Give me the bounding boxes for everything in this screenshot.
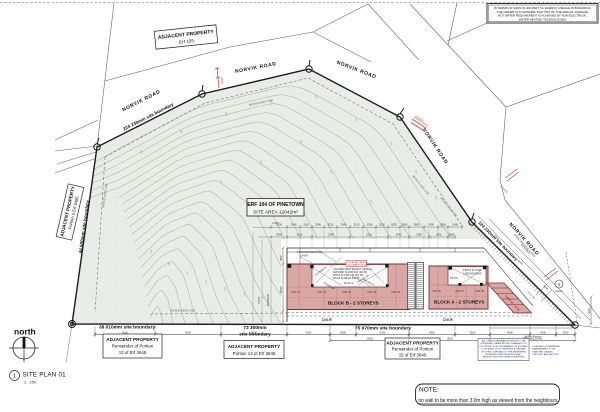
svg-text:site boundary: site boundary [239,332,271,338]
svg-text:2340: 2340 [367,223,373,227]
svg-text:3500: 3500 [470,330,476,334]
svg-text:diffused filtration: diffused filtration [524,336,542,339]
svg-text:Remainder of Portion: Remainder of Portion [112,344,154,349]
svg-text:2600: 2600 [340,330,346,334]
svg-text:6600: 6600 [185,330,191,334]
svg-text:UNIT 01: UNIT 01 [291,291,301,294]
svg-text:2600: 2600 [587,308,591,314]
svg-text:SOAK AGE STORMWATER: SOAK AGE STORMWATER [533,345,561,348]
svg-text:S: S [558,282,561,287]
svg-text:4000: 4000 [507,330,513,334]
svg-text:CH05: CH05 [272,221,279,225]
svg-text:2340: 2340 [315,223,321,227]
svg-text:ADJACENT PROPERTY: ADJACENT PROPERTY [228,344,281,349]
svg-text:1400: 1400 [452,223,458,227]
svg-text:3130: 3130 [416,233,422,237]
svg-text:3130: 3130 [297,233,303,237]
svg-text:14000: 14000 [279,286,283,294]
svg-text:3000: 3000 [402,223,408,227]
svg-text:VOLUME: VOLUME [347,265,357,267]
svg-text:Portion 14 of Erf 3645: Portion 14 of Erf 3645 [233,351,276,356]
svg-text:north: north [14,327,36,337]
svg-text:RESPECTS AT THE OWNERS EXPENSE: RESPECTS AT THE OWNERS EXPENSE [483,356,525,359]
svg-text:3M BUILDING LINE: 3M BUILDING LINE [170,309,195,313]
svg-text:UNIT 07: UNIT 07 [455,290,465,293]
svg-text:2800: 2800 [440,223,446,227]
svg-text:38 010mm site boundary: 38 010mm site boundary [99,325,155,331]
svg-text:1900: 1900 [428,223,434,227]
svg-text:1 : 250: 1 : 250 [24,380,37,385]
svg-text:refuse: refuse [220,77,225,85]
svg-text:3000: 3000 [449,233,455,237]
svg-text:POSITIONS TO BE DETERMINED ON: POSITIONS TO BE DETERMINED ON SITE AND [479,345,528,348]
svg-text:3130: 3130 [328,223,334,227]
svg-text:PLANTED: PLANTED [358,261,369,264]
svg-text:73 300mm: 73 300mm [243,325,266,331]
svg-text:UNIT 02: UNIT 02 [317,291,327,294]
svg-text:3110: 3110 [354,223,360,227]
svg-text:3110: 3110 [303,223,309,227]
svg-text:UNIT 08: UNIT 08 [475,290,485,293]
svg-text:1900: 1900 [563,330,569,334]
svg-text:Remainder of Portion: Remainder of Portion [392,347,434,352]
svg-text:3 BEDROOMS: 3 BEDROOMS [463,272,482,276]
svg-text:POOL: POOL [257,296,261,304]
svg-text:4300: 4300 [306,330,312,334]
svg-text:3110: 3110 [366,233,372,237]
svg-text:UNIT 06: UNIT 06 [432,290,442,293]
svg-text:15 of Erf 3645: 15 of Erf 3645 [399,353,427,358]
svg-text:2800: 2800 [414,223,420,227]
svg-text:PATIO: PATIO [450,276,459,280]
svg-text:DOUBLE: DOUBLE [347,262,357,264]
svg-text:ROOF SLAB RL 410.55: ROOF SLAB RL 410.55 [333,277,360,280]
svg-text:BLOCK A - 2 STOREYS: BLOCK A - 2 STOREYS [434,300,484,305]
svg-text:40.32 m²: 40.32 m² [344,282,354,285]
svg-text:ADJACENT PROPERTY: ADJACENT PROPERTY [386,341,439,346]
svg-text:ROOF 404.8: ROOF 404.8 [358,265,371,267]
svg-text:13 of Erf 3645: 13 of Erf 3645 [119,350,147,355]
svg-text:ALL ON SITE RAINWATER RUNOFF T: ALL ON SITE RAINWATER RUNOFF TO BE [482,340,526,343]
svg-text:1820: 1820 [436,233,442,237]
svg-text:MASONRY GRATED: MASONRY GRATED [533,350,554,353]
svg-text:TO BE A MIN OF 3m FROM ANY BOU: TO BE A MIN OF 3m FROM ANY BOUNDARY [481,348,527,351]
svg-text:TERRACE: TERRACE [266,294,270,307]
svg-text:MANAGEMENT TO BE: MANAGEMENT TO BE [533,348,556,351]
svg-text:NOTE:: NOTE: [419,387,439,394]
svg-text:9000: 9000 [447,336,453,340]
svg-text:LAWN: LAWN [300,254,308,258]
svg-text:4650: 4650 [279,255,283,261]
svg-text:SITE PLAN 01: SITE PLAN 01 [23,372,67,379]
svg-text:BLOCK B - 2 STOREYS: BLOCK B - 2 STOREYS [328,301,379,306]
svg-text:8950: 8950 [367,336,373,340]
svg-text:UNIT 05: UNIT 05 [391,291,401,294]
svg-text:CATCHPIT AND RECORD: CATCHPIT AND RECORD [533,353,559,356]
svg-text:WATER HEATING TECHNOLOGIES: WATER HEATING TECHNOLOGIES [519,17,566,21]
svg-text:ADJACENT PROPERTY: ADJACENT PROPERTY [106,337,159,342]
svg-text:SITE AREA 12042m²: SITE AREA 12042m² [253,210,298,216]
svg-text:2340: 2340 [341,223,347,227]
svg-text:75 970mm site boundary: 75 970mm site boundary [355,326,411,332]
svg-text:DETAIL AND SPECIFICATION IN AL: DETAIL AND SPECIFICATION IN ALL [485,353,523,356]
svg-text:2340: 2340 [291,223,297,227]
svg-text:4600: 4600 [429,330,435,334]
svg-text:ERF 104 OF PINETOWN: ERF 104 OF PINETOWN [247,202,304,208]
svg-text:UNIT 04: UNIT 04 [367,291,377,294]
svg-text:2340: 2340 [276,233,282,237]
svg-text:1: 1 [13,374,16,380]
svg-text:OR STRUCTURE AND TO THE ENGINE: OR STRUCTURE AND TO THE ENGINEERS [481,350,526,353]
svg-text:3130: 3130 [379,223,385,227]
svg-text:bank: bank [322,317,333,322]
svg-text:UNIT 03: UNIT 03 [342,291,352,294]
svg-text:DISPERSED VIA APPROVED SOAKAGE: DISPERSED VIA APPROVED SOAKAGE PITS [480,342,527,345]
svg-text:1820: 1820 [391,223,397,227]
svg-text:bank: bank [443,317,454,322]
svg-text:2340: 2340 [396,233,402,237]
svg-text:2600: 2600 [540,330,546,334]
svg-text:2340: 2340 [328,233,334,237]
